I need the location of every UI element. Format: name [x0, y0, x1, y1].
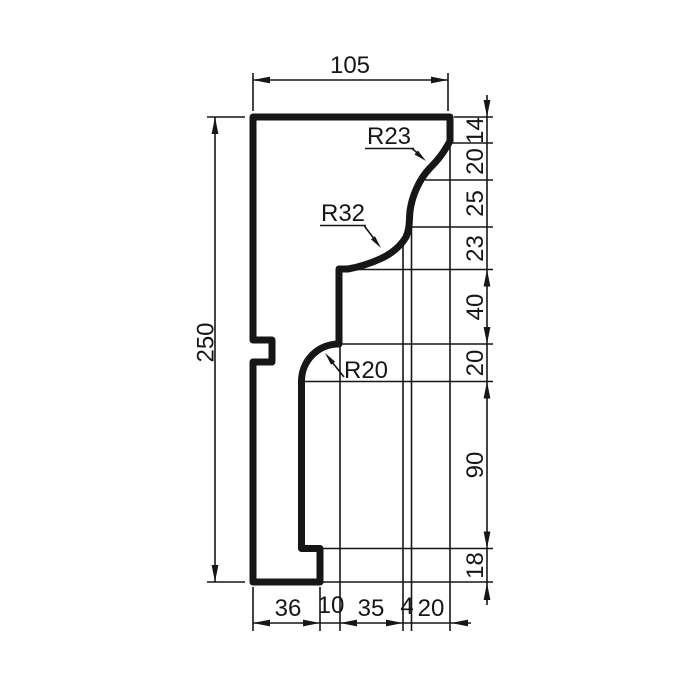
dim-label-right-20a: 20 [462, 148, 489, 175]
dim-label-right-18: 18 [462, 552, 489, 579]
dim-label-top-width: 105 [330, 52, 370, 79]
profile-outline [253, 117, 450, 582]
radius-label-r23: R23 [367, 123, 411, 150]
dim-label-right-40: 40 [462, 294, 489, 321]
dim-label-right-20b: 20 [462, 350, 489, 377]
dim-label-right-14: 14 [462, 117, 489, 144]
radius-callout-r23: R23 [365, 123, 426, 161]
radius-label-r20: R20 [344, 357, 388, 384]
profile-path [253, 117, 450, 582]
dim-label-left-height: 250 [193, 322, 220, 362]
dim-label-bottom-35: 35 [358, 595, 385, 622]
dim-label-right-23: 23 [462, 235, 489, 262]
dim-left-height: 250 [193, 117, 246, 582]
dim-top-width: 105 [253, 52, 448, 111]
dim-label-bottom-4: 4 [400, 593, 413, 620]
dim-label-bottom-20: 20 [418, 595, 445, 622]
right-dim-chain: 14 20 25 23 40 20 90 18 [303, 95, 493, 605]
dim-label-bottom-36: 36 [275, 595, 302, 622]
dim-label-bottom-10: 10 [318, 592, 345, 619]
radius-label-r32: R32 [321, 200, 365, 227]
dim-label-right-90: 90 [462, 452, 489, 479]
dim-label-right-25: 25 [462, 190, 489, 217]
technical-drawing-canvas: 105 250 14 20 25 23 40 20 90 18 [0, 0, 686, 686]
radius-callout-r32: R32 [320, 200, 381, 248]
technical-drawing-page: 105 250 14 20 25 23 40 20 90 18 [0, 0, 686, 686]
radius-callout-r20: R20 [325, 353, 388, 384]
